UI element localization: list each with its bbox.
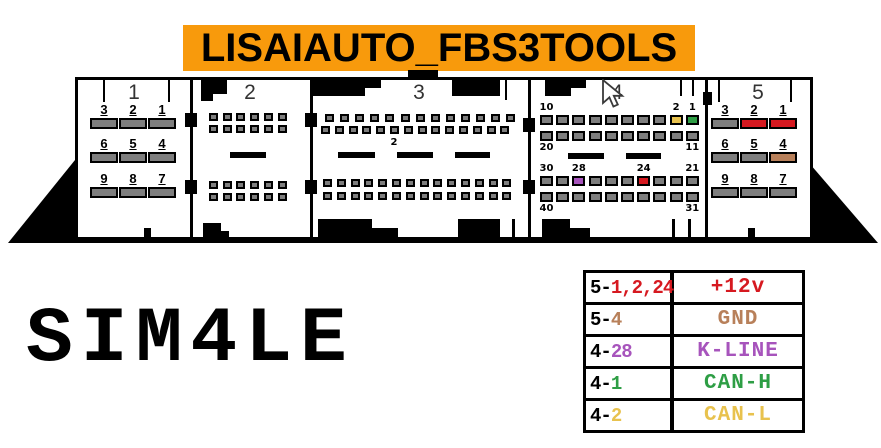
pin-ref-cell: 5-4 <box>586 305 674 334</box>
pin-2 <box>250 113 259 121</box>
pin-ref-cell: 4-1 <box>586 369 674 398</box>
pin-label-5-1: 1 <box>769 103 797 117</box>
pinout-row: 4-1CAN-H <box>586 369 802 401</box>
pinout-row: 4-2CAN-L <box>586 401 802 430</box>
notch <box>542 219 570 238</box>
pin-2 <box>264 125 273 133</box>
pin-label-1-4: 4 <box>148 137 176 151</box>
pin-4 <box>686 192 699 202</box>
key-bar <box>397 152 433 158</box>
pin-numbers: 1,2,24 <box>611 277 673 299</box>
pin-4 <box>653 176 666 186</box>
pin-2 <box>223 125 232 133</box>
signal-cell: GND <box>674 305 802 334</box>
notch <box>512 219 515 238</box>
pin-2 <box>236 113 245 121</box>
notch <box>305 113 317 127</box>
pin-3 <box>418 126 427 134</box>
pin-label-5-2: 2 <box>740 103 768 117</box>
pin-2 <box>236 181 245 189</box>
pin-label-4-31: 31 <box>681 204 703 214</box>
key-bar <box>338 152 375 158</box>
pin-2 <box>264 113 273 121</box>
pin-2 <box>250 193 259 201</box>
pin-2 <box>236 125 245 133</box>
notch <box>201 80 227 94</box>
pin-3 <box>349 126 358 134</box>
pin-3 <box>502 192 511 200</box>
pin-3 <box>420 192 429 200</box>
pin-label-1-6: 6 <box>90 137 118 151</box>
signal-cell: CAN-L <box>674 401 802 430</box>
screenshot-canvas: LISAIAUTO_FBS3TOOLS 1 2 3 4 5 3216549873… <box>0 0 881 448</box>
pin-4 <box>605 131 618 141</box>
pin-5-2 <box>740 118 768 129</box>
model-label: SIM4LE <box>26 296 355 384</box>
connector-prefix: 5- <box>590 309 611 331</box>
pin-2 <box>209 125 218 133</box>
pinout-row: 5-4GND <box>586 305 802 337</box>
pin-4 <box>686 176 699 186</box>
pin-label-5-4: 4 <box>769 137 797 151</box>
pin-label-5-6: 6 <box>711 137 739 151</box>
pin-4 <box>653 192 666 202</box>
notch <box>672 219 675 238</box>
pin-4 <box>637 131 650 141</box>
pinout-row: 4-28K-LINE <box>586 337 802 369</box>
pin-label-1-8: 8 <box>119 172 147 186</box>
pin-4 <box>653 115 666 125</box>
pin-4 <box>621 176 634 186</box>
pin-4 <box>540 131 553 141</box>
pin-ref-cell: 4-2 <box>586 401 674 430</box>
notch <box>185 180 197 194</box>
pin-1-8 <box>119 187 147 198</box>
pin-4 <box>572 176 585 186</box>
pin-3 <box>323 179 332 187</box>
pin-4 <box>556 131 569 141</box>
section-note: 2 <box>383 138 405 148</box>
pin-4 <box>637 176 650 186</box>
pin-3 <box>325 114 334 122</box>
banner-label: LISAIAUTO_FBS3TOOLS <box>201 26 677 71</box>
pin-label-5-3: 3 <box>711 103 739 117</box>
notch <box>748 228 755 238</box>
pin-3 <box>355 114 364 122</box>
pin-3 <box>447 192 456 200</box>
pin-5-8 <box>740 187 768 198</box>
pin-4 <box>670 115 683 125</box>
pin-3 <box>335 126 344 134</box>
notch <box>523 180 535 194</box>
pin-label-4-10: 10 <box>536 103 558 113</box>
key-bar <box>230 152 266 158</box>
pin-label-1-7: 7 <box>148 172 176 186</box>
pin-4 <box>540 176 553 186</box>
pin-5-4 <box>769 152 797 163</box>
pin-3 <box>337 179 346 187</box>
pin-3 <box>506 114 515 122</box>
pin-label-4-24: 24 <box>633 164 655 174</box>
pin-5-3 <box>711 118 739 129</box>
pinout-row: 5-1,2,24+12v <box>586 273 802 305</box>
pin-2 <box>278 125 287 133</box>
pin-3 <box>340 114 349 122</box>
notch <box>570 228 590 238</box>
pin-1-5 <box>119 152 147 163</box>
pin-ref-cell: 5-1,2,24 <box>586 273 674 302</box>
pin-2 <box>209 113 218 121</box>
notch <box>680 80 682 96</box>
pin-label-4-21: 21 <box>681 164 703 174</box>
notch <box>365 80 381 88</box>
pin-3 <box>459 126 468 134</box>
pin-3 <box>392 192 401 200</box>
connector-prefix: 4- <box>590 341 611 363</box>
pin-4 <box>556 115 569 125</box>
pin-3 <box>487 126 496 134</box>
pin-4 <box>670 192 683 202</box>
notch <box>523 118 535 132</box>
pin-label-1-3: 3 <box>90 103 118 117</box>
notch <box>545 80 571 96</box>
pin-3 <box>401 114 410 122</box>
pin-3 <box>362 126 371 134</box>
pin-numbers: 1 <box>611 373 621 395</box>
pin-3 <box>491 114 500 122</box>
pin-4 <box>621 115 634 125</box>
notch <box>103 80 105 102</box>
pin-label-1-9: 9 <box>90 172 118 186</box>
pin-4 <box>572 131 585 141</box>
pin-2 <box>278 193 287 201</box>
notch <box>505 80 507 100</box>
pin-label-4-28: 28 <box>568 164 590 174</box>
pin-3 <box>431 126 440 134</box>
pin-4 <box>653 131 666 141</box>
pin-3 <box>404 126 413 134</box>
pin-4 <box>540 115 553 125</box>
connector-prefix: 4- <box>590 373 611 395</box>
pin-3 <box>390 126 399 134</box>
notch <box>718 80 720 102</box>
notch <box>452 80 500 96</box>
key-bar <box>455 152 490 158</box>
pin-numbers: 4 <box>611 309 621 331</box>
pin-label-5-5: 5 <box>740 137 768 151</box>
key-bar <box>626 153 661 159</box>
pin-label-4-30: 30 <box>536 164 558 174</box>
pin-2 <box>250 125 259 133</box>
pin-2 <box>223 113 232 121</box>
pin-3 <box>476 114 485 122</box>
connector-prefix: 5- <box>590 277 611 299</box>
pin-ref-cell: 4-28 <box>586 337 674 366</box>
pin-label-1-2: 2 <box>119 103 147 117</box>
pin-numbers: 2 <box>611 405 621 427</box>
pin-label-4-20: 20 <box>536 143 558 153</box>
pin-5-7 <box>769 187 797 198</box>
notch <box>688 219 691 238</box>
pin-4 <box>556 176 569 186</box>
pin-3 <box>416 114 425 122</box>
pin-2 <box>209 193 218 201</box>
pin-label-1-5: 5 <box>119 137 147 151</box>
pin-3 <box>461 192 470 200</box>
pin-label-1-1: 1 <box>148 103 176 117</box>
notch <box>168 80 170 102</box>
pin-2 <box>223 181 232 189</box>
pin-5-6 <box>711 152 739 163</box>
notch <box>318 219 372 238</box>
pin-3 <box>406 192 415 200</box>
notch <box>458 219 500 238</box>
pin-1-4 <box>148 152 176 163</box>
pin-2 <box>209 181 218 189</box>
section-divider <box>190 80 193 237</box>
pin-3 <box>392 179 401 187</box>
notch <box>692 80 694 96</box>
notch <box>372 228 398 238</box>
pin-label-5-9: 9 <box>711 172 739 186</box>
pin-4 <box>621 192 634 202</box>
notch <box>313 80 365 96</box>
connector-body: 1 2 3 4 5 321654987321654987210212011302… <box>75 77 813 243</box>
pin-4 <box>605 115 618 125</box>
pin-label-4-11: 11 <box>681 143 703 153</box>
pin-3 <box>475 179 484 187</box>
pin-3 <box>337 192 346 200</box>
pin-4 <box>637 115 650 125</box>
pin-4 <box>589 176 602 186</box>
notch <box>144 228 151 238</box>
notch <box>571 80 586 88</box>
pin-label-4-40: 40 <box>536 204 558 214</box>
pin-3 <box>489 179 498 187</box>
section-divider <box>310 80 313 237</box>
mouse-cursor-icon <box>601 79 627 109</box>
signal-cell: K-LINE <box>674 337 802 366</box>
pin-3 <box>385 114 394 122</box>
pin-3 <box>447 179 456 187</box>
notch <box>203 223 221 238</box>
pin-3 <box>378 179 387 187</box>
pin-3 <box>489 192 498 200</box>
pin-5-9 <box>711 187 739 198</box>
section-header-2: 2 <box>244 81 256 105</box>
pin-3 <box>406 179 415 187</box>
pin-2 <box>236 193 245 201</box>
banner: LISAIAUTO_FBS3TOOLS <box>183 25 695 71</box>
signal-cell: +12v <box>674 273 802 302</box>
pin-4 <box>670 131 683 141</box>
pin-4 <box>540 192 553 202</box>
notch <box>305 180 317 194</box>
pin-3 <box>500 126 509 134</box>
notch <box>790 80 792 102</box>
pin-3 <box>473 126 482 134</box>
pin-3 <box>364 192 373 200</box>
pin-3 <box>370 114 379 122</box>
pin-3 <box>433 192 442 200</box>
pin-numbers: 28 <box>611 341 632 363</box>
pin-3 <box>321 126 330 134</box>
pin-4 <box>605 176 618 186</box>
pin-5-5 <box>740 152 768 163</box>
pin-3 <box>351 192 360 200</box>
pin-5-1 <box>769 118 797 129</box>
pin-3 <box>461 179 470 187</box>
pin-1-6 <box>90 152 118 163</box>
pin-4 <box>637 192 650 202</box>
pin-2 <box>264 181 273 189</box>
pin-4 <box>589 115 602 125</box>
right-wing-shape <box>810 164 878 243</box>
pin-3 <box>378 192 387 200</box>
pin-4 <box>686 131 699 141</box>
pin-1-2 <box>119 118 147 129</box>
section-header-3: 3 <box>413 81 425 105</box>
key-bar <box>568 153 604 159</box>
notch <box>185 113 197 127</box>
notch <box>201 94 213 101</box>
left-wing-shape <box>8 160 75 243</box>
pin-4 <box>686 115 699 125</box>
pin-4 <box>605 192 618 202</box>
pin-3 <box>323 192 332 200</box>
pin-3 <box>461 114 470 122</box>
pin-4 <box>556 192 569 202</box>
pin-3 <box>446 114 455 122</box>
pin-label-5-8: 8 <box>740 172 768 186</box>
notch <box>221 231 229 238</box>
pin-2 <box>223 193 232 201</box>
pin-label-4-1: 1 <box>681 103 703 113</box>
pin-3 <box>475 192 484 200</box>
signal-cell: CAN-H <box>674 369 802 398</box>
pin-1-1 <box>148 118 176 129</box>
connector-prefix: 4- <box>590 405 611 427</box>
pin-label-5-7: 7 <box>769 172 797 186</box>
pin-3 <box>502 179 511 187</box>
pin-4 <box>670 176 683 186</box>
pin-3 <box>445 126 454 134</box>
pin-4 <box>621 131 634 141</box>
pin-3 <box>376 126 385 134</box>
pin-3 <box>364 179 373 187</box>
pin-2 <box>278 113 287 121</box>
pin-2 <box>250 181 259 189</box>
pin-4 <box>572 192 585 202</box>
pin-1-3 <box>90 118 118 129</box>
pin-4 <box>589 131 602 141</box>
pin-4 <box>572 115 585 125</box>
pin-3 <box>433 179 442 187</box>
pin-1-7 <box>148 187 176 198</box>
pin-1-9 <box>90 187 118 198</box>
pin-3 <box>431 114 440 122</box>
pin-3 <box>351 179 360 187</box>
pin-2 <box>278 181 287 189</box>
section-divider <box>528 80 531 237</box>
pin-3 <box>420 179 429 187</box>
pin-2 <box>264 193 273 201</box>
pinout-table: 5-1,2,24+12v5-4GND4-28K-LINE4-1CAN-H4-2C… <box>583 270 805 433</box>
pin-4 <box>589 192 602 202</box>
